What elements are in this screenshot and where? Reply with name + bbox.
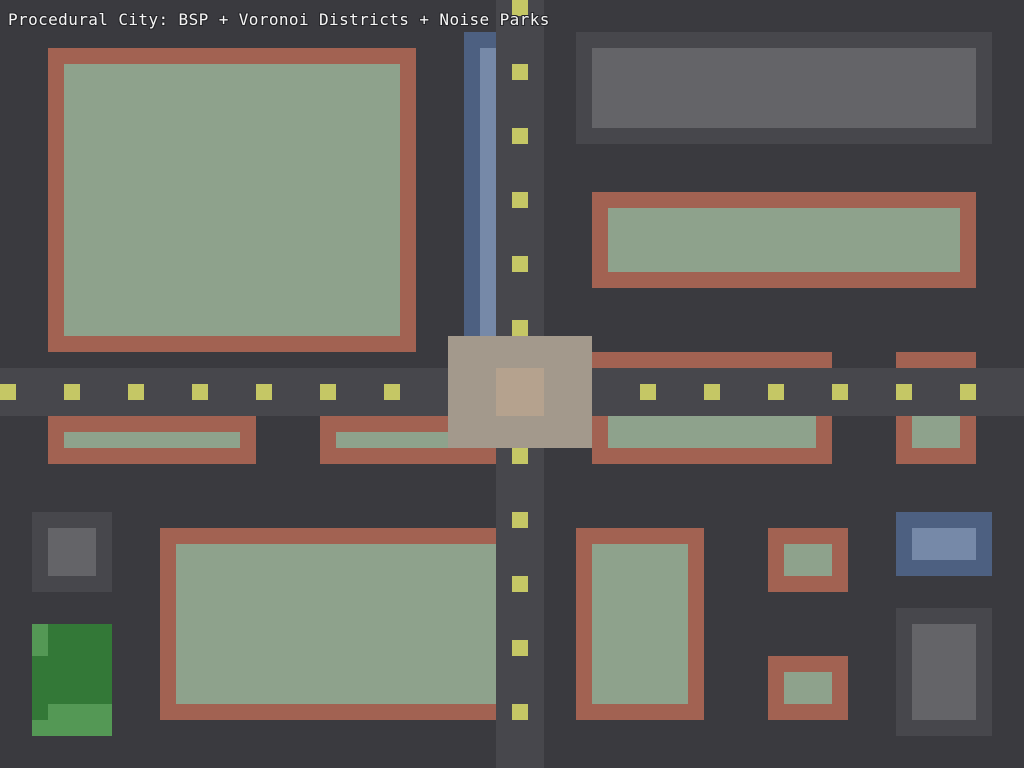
lane-dash-horizontal <box>256 384 272 400</box>
lane-dash-horizontal <box>0 384 16 400</box>
building-blue-se-floor <box>912 528 976 560</box>
building-gray-se-floor <box>912 624 976 720</box>
building-gray-ne-floor <box>592 48 976 128</box>
lane-dash-vertical <box>512 320 528 336</box>
lane-dash-vertical <box>512 704 528 720</box>
lane-dash-horizontal <box>320 384 336 400</box>
lane-dash-horizontal <box>832 384 848 400</box>
building-gray-sw-floor <box>48 528 96 576</box>
canal-strip-floor <box>480 48 496 336</box>
lane-dash-horizontal <box>768 384 784 400</box>
building-roadside-e2-floor <box>912 416 960 448</box>
lane-dash-horizontal <box>64 384 80 400</box>
lane-dash-vertical <box>512 256 528 272</box>
building-roadside-w2-floor <box>336 432 448 448</box>
building-far-east-top-edge <box>896 352 976 368</box>
lane-dash-vertical <box>512 128 528 144</box>
lane-dash-vertical <box>512 192 528 208</box>
city-canvas: Procedural City: BSP + Voronoi Districts… <box>0 0 1024 768</box>
lane-dash-horizontal <box>896 384 912 400</box>
park-sw-noise-patch <box>48 704 112 736</box>
building-east-floor <box>608 208 960 272</box>
lane-dash-vertical <box>512 448 528 464</box>
title-text: Procedural City: BSP + Voronoi Districts… <box>8 10 550 29</box>
lane-dash-horizontal <box>640 384 656 400</box>
lane-dash-vertical <box>512 512 528 528</box>
lane-dash-vertical <box>512 64 528 80</box>
building-south-central-floor <box>176 544 496 704</box>
building-south-east-floor <box>592 544 688 704</box>
park-sw-noise-patch <box>32 624 48 656</box>
building-small-se1-floor <box>784 544 832 576</box>
building-roadside-e1-floor <box>608 416 816 448</box>
lane-dash-horizontal <box>128 384 144 400</box>
lane-dash-vertical <box>512 576 528 592</box>
plaza-center <box>496 368 544 416</box>
lane-dash-vertical <box>512 640 528 656</box>
lane-dash-horizontal <box>704 384 720 400</box>
building-mid-east-top-edge <box>592 352 832 368</box>
building-residential-nw-floor <box>64 64 400 336</box>
lane-dash-horizontal <box>960 384 976 400</box>
lane-dash-horizontal <box>192 384 208 400</box>
park-sw-noise-patch <box>32 720 48 736</box>
building-small-se2-floor <box>784 672 832 704</box>
lane-dash-horizontal <box>384 384 400 400</box>
building-roadside-w1-floor <box>64 432 240 448</box>
